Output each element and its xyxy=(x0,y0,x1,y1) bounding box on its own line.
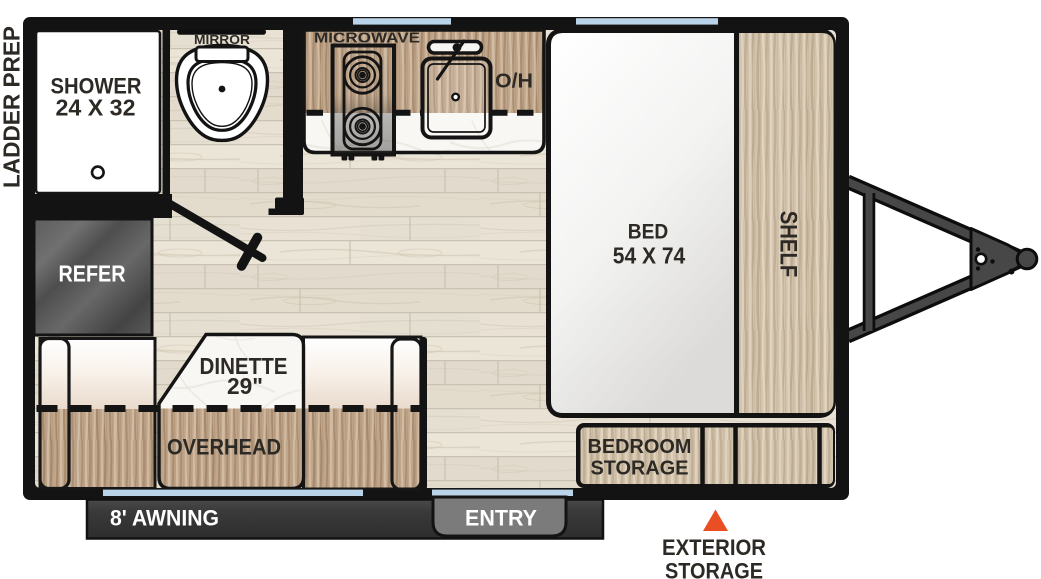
svg-text:REFER: REFER xyxy=(59,261,126,287)
svg-text:8' AWNING: 8' AWNING xyxy=(110,506,219,531)
svg-text:O/H: O/H xyxy=(495,71,533,93)
svg-text:STORAGE: STORAGE xyxy=(591,457,689,480)
svg-text:MIRROR: MIRROR xyxy=(194,32,250,47)
svg-text:SHELF: SHELF xyxy=(775,211,802,278)
svg-text:54 X 74: 54 X 74 xyxy=(613,243,686,269)
svg-text:24 X 32: 24 X 32 xyxy=(56,95,136,121)
svg-text:LADDER PREP: LADDER PREP xyxy=(0,26,25,188)
svg-text:BEDROOM: BEDROOM xyxy=(588,436,692,458)
svg-text:ENTRY: ENTRY xyxy=(465,506,537,531)
svg-text:BED: BED xyxy=(628,220,669,244)
svg-text:STORAGE: STORAGE xyxy=(665,559,763,579)
svg-text:OVERHEAD: OVERHEAD xyxy=(167,435,281,460)
svg-text:EXTERIOR: EXTERIOR xyxy=(662,535,766,560)
svg-text:29": 29" xyxy=(227,373,263,399)
